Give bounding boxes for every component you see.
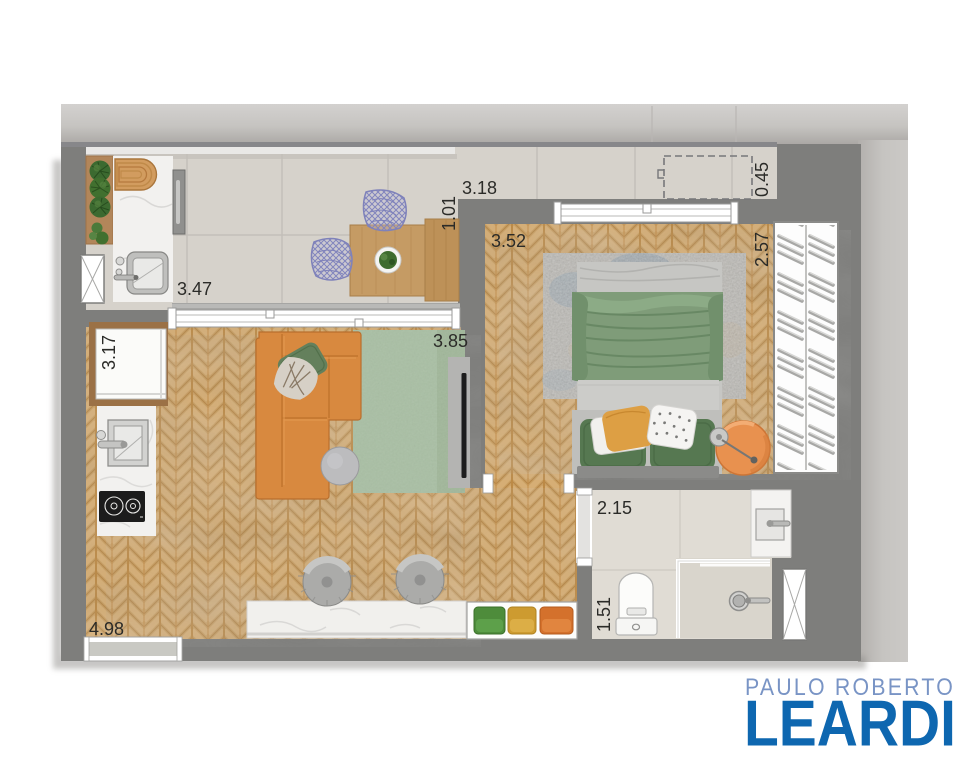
svg-text:4.98: 4.98	[89, 619, 124, 639]
svg-text:3.85: 3.85	[433, 331, 468, 351]
svg-text:1.51: 1.51	[594, 597, 614, 632]
svg-text:3.18: 3.18	[462, 178, 497, 198]
svg-text:2.57: 2.57	[752, 232, 772, 267]
svg-text:2.15: 2.15	[597, 498, 632, 518]
svg-text:1.01: 1.01	[439, 196, 459, 231]
svg-text:3.47: 3.47	[177, 279, 212, 299]
svg-text:LEARDI: LEARDI	[744, 688, 956, 760]
svg-text:3.17: 3.17	[99, 335, 119, 370]
svg-text:0.45: 0.45	[752, 162, 772, 197]
svg-text:3.52: 3.52	[491, 231, 526, 251]
